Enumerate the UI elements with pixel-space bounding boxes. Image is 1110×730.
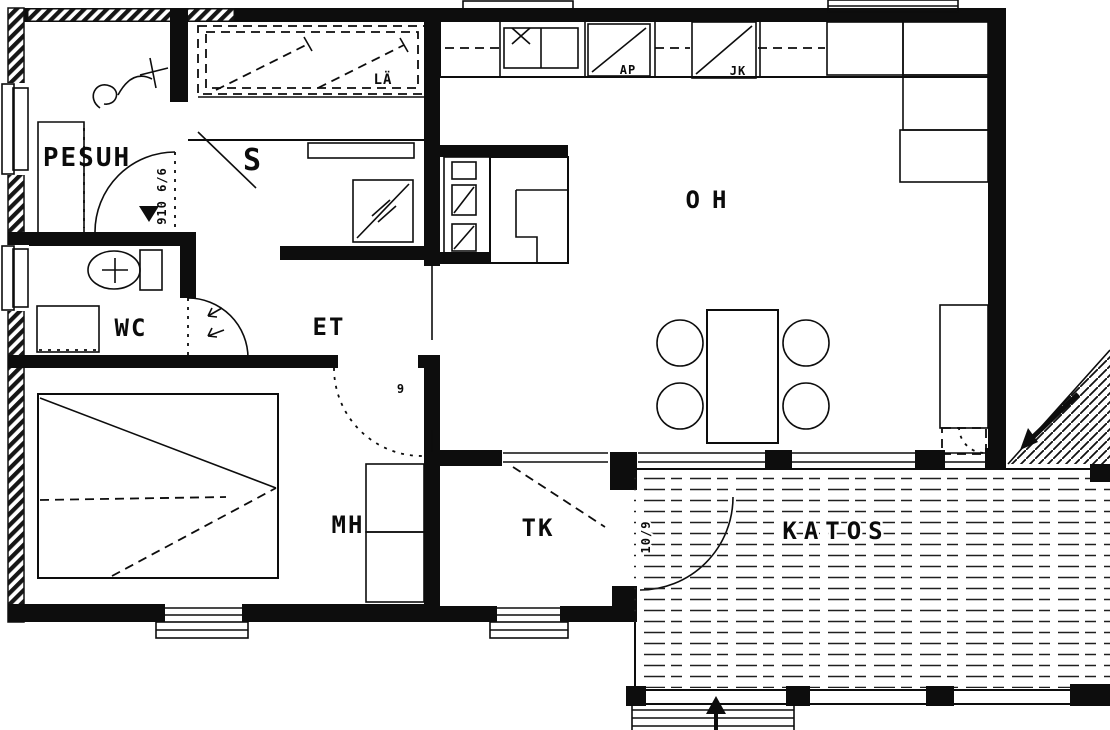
deck-post-3 xyxy=(926,686,954,706)
label-et: ET xyxy=(313,313,346,341)
bed-mid-dashed xyxy=(40,497,226,500)
deck-post-top-right xyxy=(1090,464,1110,482)
wardrobe-2 xyxy=(366,532,424,602)
wc-door-swing xyxy=(188,298,248,358)
wall-tk-bottom-left xyxy=(436,606,498,622)
shower-hose-curl xyxy=(93,85,116,108)
fireplace-hearth-step xyxy=(516,190,568,263)
wall-tk-top xyxy=(436,450,502,466)
deck-boards xyxy=(634,468,1110,688)
label-oh: OH xyxy=(686,186,739,214)
fireplace-flue-column xyxy=(444,157,490,263)
chair-4 xyxy=(783,383,829,429)
annotation-deck-door: 10/9 xyxy=(639,521,653,554)
wall-cabinet-dashed xyxy=(942,428,986,454)
sauna-bench-arrow-1 xyxy=(216,44,308,90)
label-wc: WC xyxy=(115,314,148,342)
toilet-tank xyxy=(140,250,162,290)
sauna-bench-arrow-2-tick xyxy=(400,38,408,52)
wall-south-corner xyxy=(985,448,1006,468)
entrance-door-swing xyxy=(959,427,985,453)
floor-plan-drawing: PESUH S LÄ WC ET OH MH TK KATOS AP JK 91… xyxy=(0,0,1110,730)
wall-et-mh xyxy=(8,355,338,368)
sauna-bench-arrow-1-tick xyxy=(304,37,312,51)
deck-post-1 xyxy=(626,686,646,706)
corner-cabinet-4 xyxy=(900,130,988,182)
window-kitchen-small xyxy=(463,1,573,9)
floor-plan-page: PESUH S LÄ WC ET OH MH TK KATOS AP JK 91… xyxy=(0,0,1110,730)
label-sauna: S xyxy=(243,143,261,178)
wall-pesuh-sauna xyxy=(170,8,188,102)
window-pesuh-bg xyxy=(1,83,29,175)
fireplace-body xyxy=(490,157,568,263)
window-tk-south-bg xyxy=(497,604,560,622)
wall-sauna-south xyxy=(280,246,438,260)
mh-door-swing xyxy=(334,368,422,456)
window-wc-bg xyxy=(1,245,29,311)
chair-1 xyxy=(657,320,703,366)
living-room-furniture xyxy=(657,305,988,454)
fireplace xyxy=(444,157,568,263)
wall-pesuh-wc xyxy=(8,232,196,246)
shower-stall xyxy=(38,122,84,232)
fireplace-flue-3-diagonal xyxy=(454,226,474,249)
wall-tk-bottom-right xyxy=(560,606,634,622)
label-mh: MH xyxy=(332,511,365,539)
label-katos: KATOS xyxy=(782,517,889,545)
wardrobe-1 xyxy=(366,464,424,532)
wc-door-direction-marks xyxy=(208,308,224,337)
deck-post-2 xyxy=(786,686,810,706)
sauna-stove-diagonal xyxy=(357,184,409,238)
label-tk: TK xyxy=(522,514,555,542)
corner-cabinet-1 xyxy=(827,22,903,75)
label-pesuh: PESUH xyxy=(43,143,131,173)
label-ap: AP xyxy=(620,63,636,77)
fireplace-wall-band xyxy=(440,145,568,157)
corner-cabinet-3 xyxy=(903,75,988,130)
fireplace-flue-2-diagonal xyxy=(454,187,474,213)
annotation-sauna-door: 910 6/6 xyxy=(155,167,169,225)
bed-diagonal-solid xyxy=(40,398,276,488)
sauna-bench-step xyxy=(308,143,414,158)
bed-diagonal-dashed xyxy=(112,488,276,576)
corner-cabinet-2 xyxy=(903,22,988,75)
wall-tk-door-jamb-top xyxy=(610,452,637,490)
wall-mh-tk xyxy=(424,368,440,622)
label-la: LÄ xyxy=(374,71,393,88)
fireplace-flue-1 xyxy=(452,162,476,179)
wall-cabinet xyxy=(940,305,988,428)
shower-mixer-cross xyxy=(140,58,168,88)
wall-right xyxy=(988,8,1006,466)
wall-south-mullion-2 xyxy=(915,450,945,468)
annotation-bedroom-door: 9 xyxy=(397,382,405,396)
window-mh-bg xyxy=(165,604,242,622)
label-jk: JK xyxy=(730,64,746,78)
shower-hose xyxy=(118,76,152,95)
chair-2 xyxy=(657,383,703,429)
chair-3 xyxy=(783,320,829,366)
washbasin xyxy=(37,306,99,352)
sink-cross-mark xyxy=(512,28,530,44)
wall-south-mullion-1 xyxy=(765,450,792,468)
bedroom-and-hall xyxy=(38,368,424,602)
wall-top-hatched-segment xyxy=(28,9,234,21)
wall-et-mh-stub xyxy=(418,355,440,368)
wall-wc-et xyxy=(180,246,196,298)
dining-table xyxy=(707,310,778,443)
sauna xyxy=(188,26,426,242)
deck-post-4 xyxy=(1070,684,1110,706)
toilet-cross xyxy=(102,258,128,283)
